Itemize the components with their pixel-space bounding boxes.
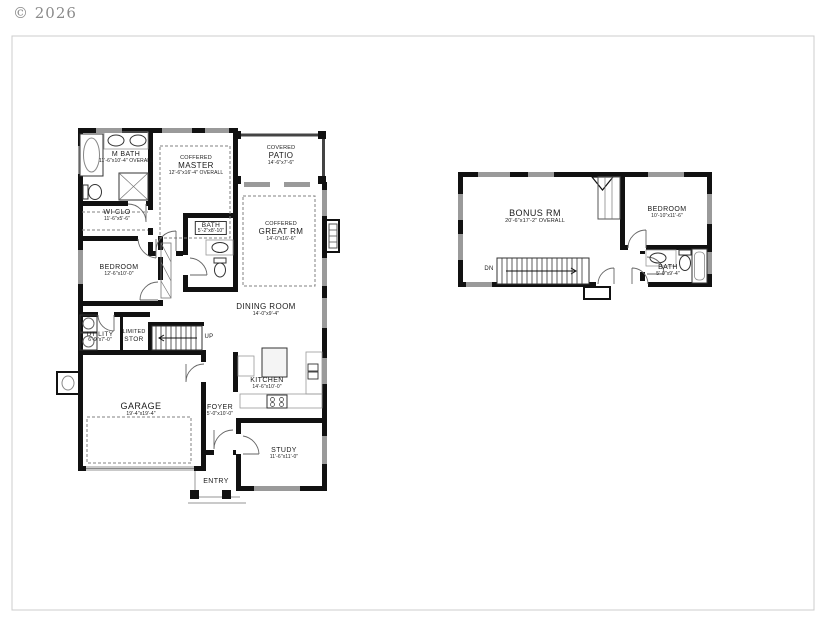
counter — [240, 394, 322, 408]
room-label-study: STUDY 11'-6"x11'-0" — [270, 447, 299, 460]
toilet — [214, 258, 226, 263]
upper-bump — [584, 287, 610, 299]
room-label-utility: UTILITY 6'-9"x7'-0" — [87, 331, 114, 343]
room-label-kitchen: KITCHEN 14'-6"x10'-0" — [250, 377, 284, 390]
stairs-upper — [497, 258, 589, 284]
doors-upper — [598, 230, 664, 284]
room-label-bedroom: BEDROOM 12'-6"x10'-0" — [100, 264, 139, 277]
sheet-frame — [12, 36, 814, 610]
room-label-bonus: BONUS RM 20'-6"x17'-2" OVERALL — [505, 209, 565, 225]
upper-floor-plan — [458, 172, 712, 299]
porch-post — [190, 490, 199, 499]
hall-bath-fixtures — [206, 240, 233, 277]
room-label-entry: ENTRY — [203, 478, 229, 486]
room-label-bath2: BATH 5'-0"x9'-4" — [656, 264, 680, 277]
room-label-garage: GARAGE 19'-4"x19'-4" — [121, 402, 162, 417]
stairs-up-label: UP — [205, 334, 214, 340]
room-label-patio: COVERED PATIO 14'-6"x7'-6" — [267, 146, 296, 166]
sink — [108, 135, 124, 146]
stairs-main — [152, 326, 202, 350]
room-label-wiclo: WI CLO 11'-6"x5'-6" — [103, 209, 130, 222]
garage-door-opening — [86, 466, 194, 471]
room-label-stor: LIMITED STOR — [122, 330, 145, 343]
fridge — [238, 356, 254, 376]
room-label-mbath: M BATH 11'-6"x10'-4" OVERALL — [99, 151, 153, 164]
range — [267, 395, 287, 408]
room-label-bath: BATH 5'-2"x8'-10" — [195, 221, 227, 235]
kitchen-sink — [308, 364, 318, 371]
room-label-bedroom2: BEDROOM 10'-10"x11'-6" — [648, 206, 687, 219]
dormer-marker — [592, 177, 613, 190]
porch-post — [222, 490, 231, 499]
door-openings-upper — [596, 244, 648, 288]
room-label-dining: DINING ROOM 14'-0"x9'-4" — [236, 303, 296, 317]
toilet — [679, 250, 691, 255]
vanity-counter — [104, 132, 148, 149]
room-label-foyer: FOYER 5'-0"x10'-0" — [207, 404, 233, 417]
fireplace — [326, 220, 339, 252]
sink — [130, 135, 146, 146]
room-label-master: COFFERED MASTER 12'-6"x16'-4" OVERALL — [169, 156, 224, 176]
floorplan-drawing — [0, 0, 825, 619]
floorplan-sheet: © 2026 — [0, 0, 825, 619]
mbath-fixtures — [80, 132, 148, 200]
island — [262, 348, 287, 377]
stairs-dn-label: DN — [484, 266, 493, 272]
toilet — [83, 185, 88, 199]
sink — [212, 243, 228, 253]
side-bump — [57, 372, 79, 394]
room-label-greatrm: COFFERED GREAT RM 14'-0"x16'-6" — [259, 222, 304, 242]
